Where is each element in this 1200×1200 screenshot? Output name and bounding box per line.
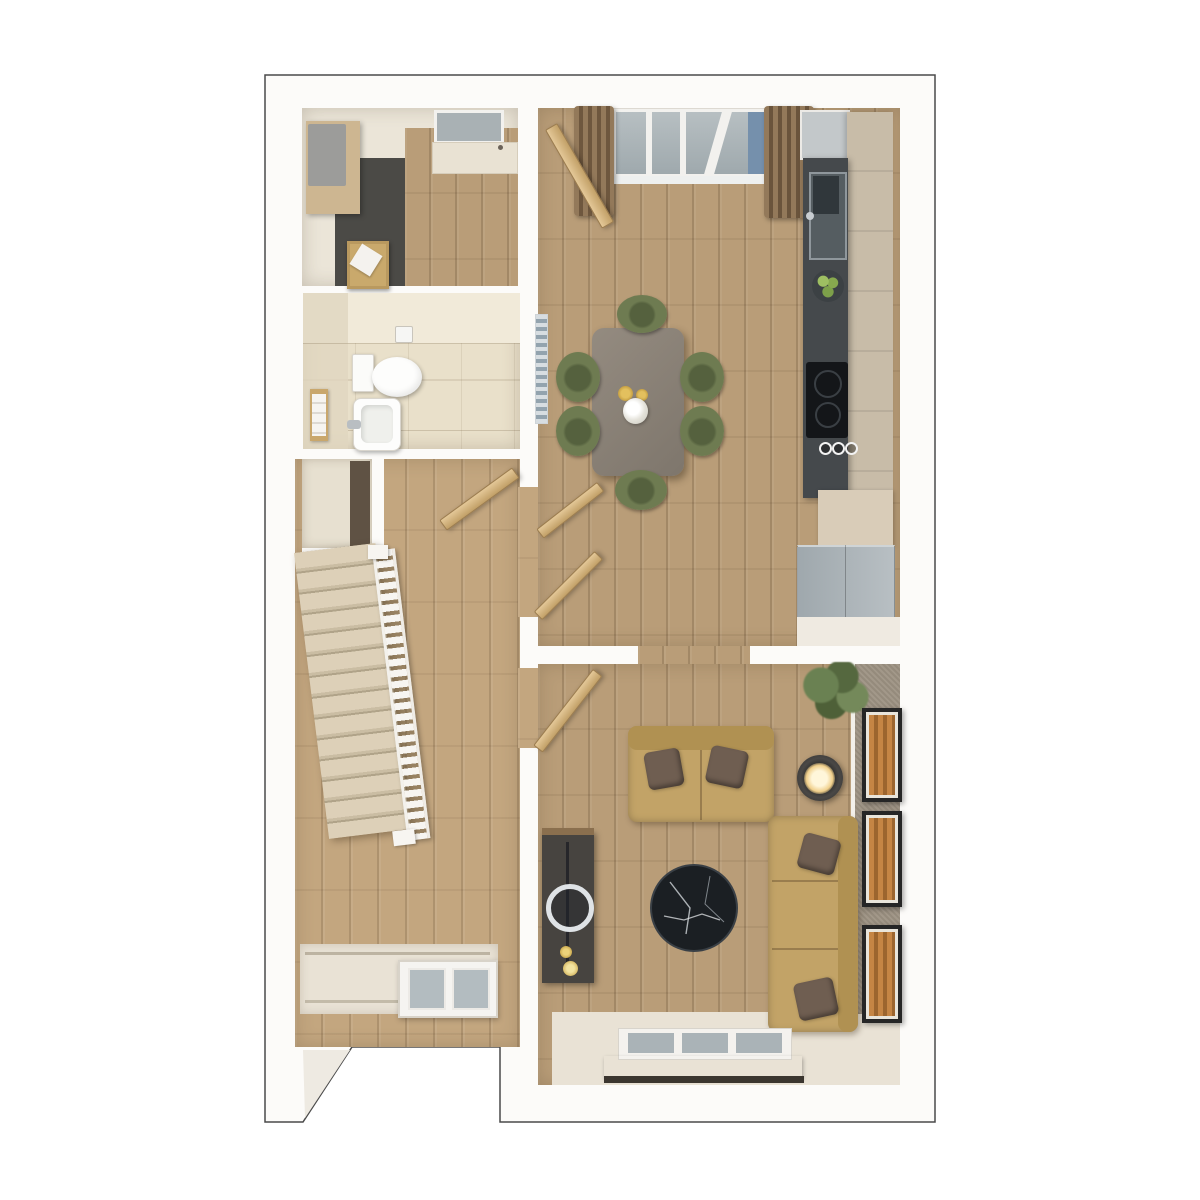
newel-post-bottom xyxy=(392,829,416,847)
front-door-glass-left xyxy=(408,968,446,1010)
dining-open-door-lower xyxy=(534,551,603,620)
rear-window-pane-3 xyxy=(736,1033,782,1053)
wall-frame-2 xyxy=(862,811,902,907)
dining-chair-left-2 xyxy=(556,406,600,456)
gold-ornament-2 xyxy=(563,961,578,976)
wall-frame-3 xyxy=(862,925,902,1023)
utility-room xyxy=(302,108,518,286)
three-seat-sofa-back xyxy=(838,816,858,1032)
sink-faucet xyxy=(806,212,814,220)
toilet-roll-holder xyxy=(395,326,413,343)
rear-window-pane-1 xyxy=(628,1033,674,1053)
sink-basin xyxy=(813,176,839,214)
basin-bowl xyxy=(361,405,393,443)
loveseat-seam xyxy=(700,750,702,820)
house-plant xyxy=(800,662,870,720)
kitchen-window-right xyxy=(800,110,850,160)
media-console-wood-edge xyxy=(542,828,594,835)
tall-cabinets xyxy=(847,112,893,490)
dining-chair-left-1 xyxy=(556,352,600,402)
door-sill xyxy=(610,176,785,184)
dining-chair-right-1 xyxy=(680,352,724,402)
utility-cabinet-top xyxy=(308,124,346,186)
hob-knob-2 xyxy=(832,442,845,455)
hallway xyxy=(295,459,520,1047)
loveseat-pillow-right xyxy=(704,744,749,789)
gold-ornament-1 xyxy=(560,946,572,958)
door-handle xyxy=(498,145,503,150)
hob-burner-2 xyxy=(815,402,841,428)
utility-back-door xyxy=(432,142,518,174)
living-room xyxy=(538,664,900,1085)
loveseat-back xyxy=(628,726,774,750)
table-lamp-glow xyxy=(804,763,835,794)
kitchen-dining-room xyxy=(538,108,900,646)
window-pelmet xyxy=(604,1056,802,1078)
living-open-door xyxy=(533,669,602,753)
doorway-living xyxy=(518,668,538,748)
fridge-freezer xyxy=(797,545,895,620)
newel-post-top xyxy=(368,545,388,559)
mullion-2 xyxy=(680,112,686,174)
towels xyxy=(312,394,326,436)
sofa-seam-1 xyxy=(772,880,838,882)
hallway-open-door xyxy=(439,467,519,530)
dining-open-door-upper xyxy=(536,482,604,539)
radiator xyxy=(535,314,548,424)
dining-living-opening xyxy=(638,646,750,664)
cupboard-wall xyxy=(372,459,384,549)
worktop-beige xyxy=(818,490,893,547)
dining-chair-top xyxy=(617,295,667,333)
entry-step-line xyxy=(305,952,490,955)
rear-window-pane-2 xyxy=(682,1033,728,1053)
utility-window xyxy=(434,110,504,144)
frame-art xyxy=(869,715,895,795)
fruit-bowl xyxy=(812,270,844,302)
fridge-seam xyxy=(845,545,846,617)
wall-frame-1 xyxy=(862,708,902,802)
flower-vase xyxy=(623,398,648,424)
floor-plan-render xyxy=(0,0,1200,1200)
basin-faucet xyxy=(347,420,361,429)
cupboard-shadow xyxy=(350,461,370,546)
kitchen-corner-floor xyxy=(797,617,900,646)
hob-knob-1 xyxy=(819,442,832,455)
toilet-cistern xyxy=(352,354,374,392)
bathroom xyxy=(303,293,520,449)
front-door-glass-right xyxy=(452,968,490,1010)
loveseat-pillow-left xyxy=(643,747,685,791)
frame-art xyxy=(869,818,895,900)
coffee-table xyxy=(650,864,738,952)
dining-chair-right-2 xyxy=(680,406,724,456)
pelmet-shadow xyxy=(604,1076,804,1083)
hob-burner-1 xyxy=(814,370,842,398)
sofa-seam-2 xyxy=(772,948,838,950)
frame-art xyxy=(869,932,895,1016)
round-mirror xyxy=(546,884,594,932)
doorway-dining xyxy=(518,487,538,617)
dining-chair-bottom xyxy=(615,470,667,510)
hob-knob-3 xyxy=(845,442,858,455)
mullion-1 xyxy=(646,112,652,174)
sofa-pillow-bottom xyxy=(792,976,839,1021)
toilet-bowl xyxy=(372,357,422,397)
